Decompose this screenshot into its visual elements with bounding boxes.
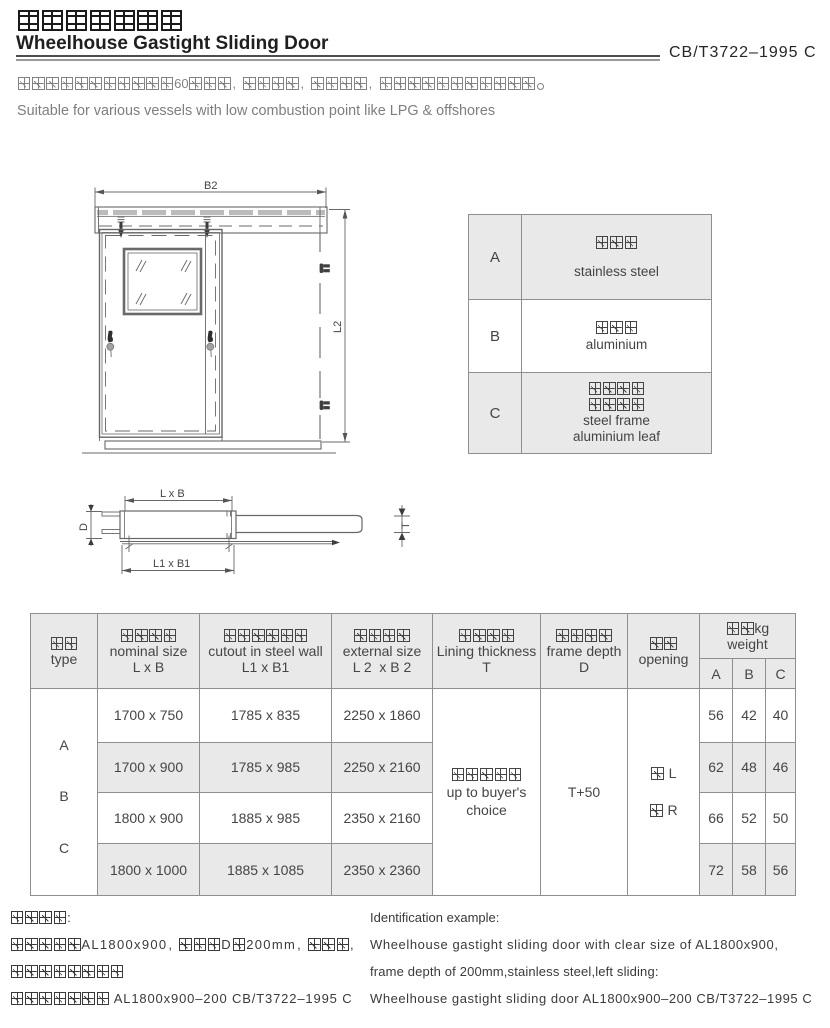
svg-text:D: D — [78, 523, 90, 531]
svg-text:B2: B2 — [204, 180, 217, 192]
svg-text:L1 x B1: L1 x B1 — [153, 558, 190, 570]
svg-text:T: T — [400, 522, 412, 529]
svg-text:L x B: L x B — [160, 488, 185, 500]
svg-text:L2: L2 — [332, 321, 344, 333]
